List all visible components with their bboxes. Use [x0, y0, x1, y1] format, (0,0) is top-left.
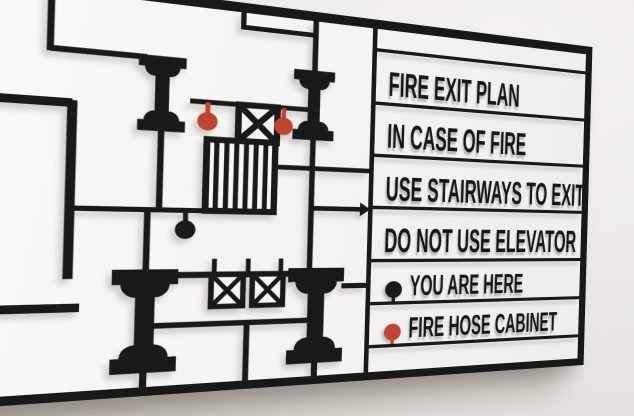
- message-text: IN CASE OF FIRE: [387, 121, 527, 161]
- column-icon: [137, 54, 187, 133]
- floor-plan-drawing: [0, 0, 373, 405]
- fire-exit-sign: FIRE EXIT PLAN IN CASE OF FIRE USE STAIR…: [0, 0, 592, 416]
- message-row-do-not-use-elevator: DO NOT USE ELEVATOR: [371, 209, 581, 258]
- corridor-walls-left: [0, 86, 85, 313]
- exit-direction-arrow-icon: [311, 201, 371, 216]
- column-icon: [292, 69, 335, 142]
- fire-hose-pin-icon: [197, 101, 218, 131]
- elevator-icon: [210, 274, 243, 306]
- message-text: DO NOT USE ELEVATOR: [384, 225, 577, 257]
- stairs-icon: [205, 139, 275, 212]
- elevator-icon: [238, 105, 278, 144]
- legend-row-you-are-here: YOU ARE HERE: [370, 261, 580, 302]
- column-icon: [109, 269, 178, 375]
- floor-plan-area: [0, 0, 373, 405]
- wall: FIRE EXIT PLAN IN CASE OF FIRE USE STAIR…: [0, 0, 634, 416]
- location-pin-icon: [383, 324, 401, 346]
- legend-label: YOU ARE HERE: [409, 272, 523, 300]
- message-text: USE STAIRWAYS TO EXIT: [385, 173, 583, 210]
- instructions-panel: FIRE EXIT PLAN IN CASE OF FIRE USE STAIR…: [364, 28, 586, 372]
- you-are-here-pin-icon: [175, 210, 196, 239]
- elevator-icon: [252, 274, 284, 306]
- location-pin-icon: [385, 281, 403, 302]
- column-icon: [286, 268, 344, 365]
